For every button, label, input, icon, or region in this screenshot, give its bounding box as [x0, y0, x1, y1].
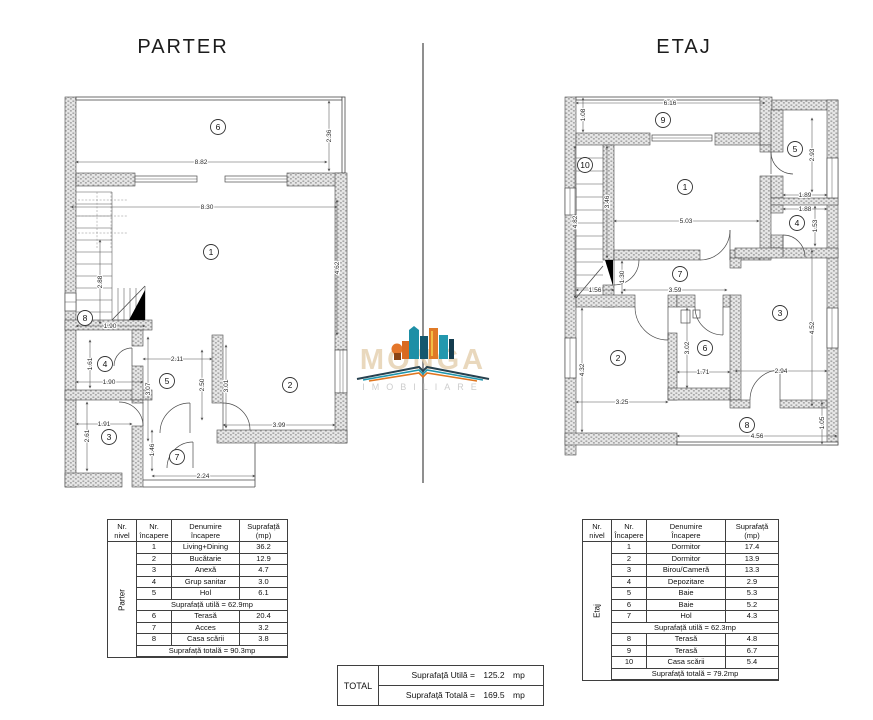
level-label-cell: Etaj	[583, 542, 612, 680]
table-cell: Casa scării	[172, 634, 240, 645]
table-header-cell: Suprafață(mp)	[240, 520, 287, 541]
room-number: 7	[678, 269, 683, 279]
total-table-label: TOTAL	[338, 666, 379, 705]
table-cell: 3.0	[240, 577, 287, 588]
table-row: 8Terasă4.8	[612, 634, 778, 646]
total-row: Suprafață Utilă =125.2mp	[379, 666, 543, 686]
dimension-label: 1.46	[149, 443, 156, 456]
table-row: 5Baie5.3	[612, 588, 778, 600]
table-cell: 6.7	[726, 646, 778, 657]
table-cell: Baie	[647, 600, 726, 611]
dimension-label: 1.53	[812, 219, 819, 232]
dimension-label: 1.89	[799, 192, 812, 199]
table-row: 8Casa scării3.8	[137, 634, 287, 646]
floor-plan-etaj: 910154726386.161.084.823.465.032.931.891…	[555, 88, 845, 460]
room-number: 1	[683, 182, 688, 192]
table-row: 3Anexă4.7	[137, 565, 287, 577]
table-cell: 4	[612, 577, 647, 588]
total-row-unit: mp	[513, 686, 537, 705]
title-etaj: ETAJ	[604, 36, 764, 59]
table-cell: 13.3	[726, 565, 778, 576]
watermark-logo: MONGA IMOBILIARE	[353, 326, 493, 398]
table-row: 2Bucătarie12.9	[137, 554, 287, 566]
table-header-cell: Nr.nivel	[108, 520, 137, 541]
parter-walls	[65, 97, 347, 487]
table-cell: 5	[612, 588, 647, 599]
dimension-label: 2.94	[775, 368, 788, 375]
dimension-label: 3.07	[145, 382, 152, 395]
table-row: 6Terasă20.4	[137, 611, 287, 623]
dimension-label: 2.93	[809, 148, 816, 161]
table-cell: 12.9	[240, 554, 287, 565]
table-row: 2Dormitor13.9	[612, 554, 778, 566]
table-cell: Grup sanitar	[172, 577, 240, 588]
dimension-label: 4.52	[809, 321, 816, 334]
room-number: 2	[288, 380, 293, 390]
table-cell: 20.4	[240, 611, 287, 622]
table-row: 6Baie5.2	[612, 600, 778, 612]
dimension-label: 6.16	[664, 100, 677, 107]
dimension-label: 4.62	[334, 261, 341, 274]
room-number: 1	[209, 247, 214, 257]
table-cell: 3	[612, 565, 647, 576]
area-table-etaj: Nr.nivelNr.ÎncapereDenumireÎncapereSupra…	[582, 519, 779, 681]
table-cell: 9	[612, 646, 647, 657]
table-cell: 2	[612, 554, 647, 565]
dimension-label: 4.32	[579, 363, 586, 376]
dimension-label: 2.36	[326, 129, 333, 142]
table-cell: Terasă	[647, 634, 726, 645]
table-cell: 5.2	[726, 600, 778, 611]
room-number: 4	[795, 218, 800, 228]
room-number: 8	[83, 313, 88, 323]
table-cell: 1	[137, 542, 172, 553]
table-cell: 7	[137, 623, 172, 634]
dimension-label: 1.61	[87, 357, 94, 370]
table-row: 5Hol6.1	[137, 588, 287, 600]
table-summary-row: Suprafață utilă = 62.3mp	[612, 623, 778, 635]
table-cell: 1	[612, 542, 647, 553]
total-row-label: Suprafață Totală =	[379, 686, 475, 705]
level-label-cell: Parter	[108, 542, 137, 657]
parter-stairs	[76, 192, 145, 320]
table-header-cell: Denumireîncapere	[172, 520, 240, 541]
watermark-tagline: IMOBILIARE	[353, 382, 493, 392]
table-cell: Baie	[647, 588, 726, 599]
dimension-label: 1.30	[619, 270, 626, 283]
table-header: Nr.nivelNr.încapereDenumireîncapereSupra…	[108, 520, 287, 542]
table-row: 4Grup sanitar3.0	[137, 577, 287, 589]
total-row-value: 169.5	[475, 686, 513, 705]
room-number: 7	[175, 452, 180, 462]
dimension-label: 1.05	[819, 416, 826, 429]
table-row: 4Depozitare2.9	[612, 577, 778, 589]
dimension-label: 2.24	[197, 473, 210, 480]
total-row-unit: mp	[513, 666, 537, 685]
table-row: 1Dormitor17.4	[612, 542, 778, 554]
dimension-label: 1.56	[589, 287, 602, 294]
table-cell: 8	[137, 634, 172, 645]
table-cell: 4.7	[240, 565, 287, 576]
floor-plan-parter: 618453728.822.368.304.622.881.901.611.90…	[57, 88, 357, 493]
table-row: 7Hol4.3	[612, 611, 778, 623]
table-cell: Depozitare	[647, 577, 726, 588]
table-row: 10Casa scării5.4	[612, 657, 778, 669]
level-label: Parter	[118, 589, 127, 611]
table-cell: 3.2	[240, 623, 287, 634]
table-cell: 3	[137, 565, 172, 576]
dimension-label: 3.01	[223, 379, 230, 392]
dimension-label: 4.82	[572, 215, 579, 228]
table-header-cell: DenumireÎncapere	[647, 520, 726, 541]
table-cell: 6.1	[240, 588, 287, 599]
dimension-label: 3.99	[273, 422, 286, 429]
table-cell: Living+Dining	[172, 542, 240, 553]
table-cell: Acces	[172, 623, 240, 634]
table-cell: Hol	[172, 588, 240, 599]
table-cell: Bucătarie	[172, 554, 240, 565]
room-number: 3	[778, 308, 783, 318]
center-divider-line	[422, 43, 424, 483]
title-parter: PARTER	[103, 36, 263, 59]
buildings-icon	[391, 326, 457, 364]
dimension-label: 1.91	[98, 421, 111, 428]
table-cell: 6	[612, 600, 647, 611]
room-number: 8	[745, 420, 750, 430]
total-table-rows: Suprafață Utilă =125.2mpSuprafață Totală…	[379, 666, 543, 705]
table-row: 9Terasă6.7	[612, 646, 778, 658]
table-header-cell: Nr.Încapere	[612, 520, 647, 541]
area-table-parter: Nr.nivelNr.încapereDenumireîncapereSupra…	[107, 519, 288, 658]
table-header-cell: Suprafață(mp)	[726, 520, 778, 541]
table-header-cell: Nr.încapere	[137, 520, 172, 541]
room-number: 10	[580, 160, 590, 170]
dimension-label: 2.11	[171, 356, 184, 363]
room-number: 5	[793, 144, 798, 154]
room-number: 6	[216, 122, 221, 132]
dimension-label: 3.59	[669, 287, 682, 294]
table-cell: 4.3	[726, 611, 778, 622]
table-cell: Dormitor	[647, 542, 726, 553]
table-cell: Casa scării	[647, 657, 726, 668]
dimension-label: 3.02	[684, 341, 691, 354]
total-table: TOTAL Suprafață Utilă =125.2mpSuprafață …	[337, 665, 544, 706]
table-cell: 5.3	[726, 588, 778, 599]
floorplan-sheet: PARTER ETAJ	[0, 0, 873, 720]
table-cell: 36.2	[240, 542, 287, 553]
dimension-label: 1.88	[799, 206, 812, 213]
table-header-cell: Nr.nivel	[583, 520, 612, 541]
parter-dimension-lines	[71, 101, 337, 476]
table-summary-row: Suprafață totală = 79.2mp	[612, 669, 778, 681]
dimension-label: 8.30	[201, 204, 214, 211]
dimension-label: 8.82	[195, 159, 208, 166]
table-row: 3Birou/Cameră13.3	[612, 565, 778, 577]
total-row: Suprafață Totală =169.5mp	[379, 686, 543, 705]
table-cell: Dormitor	[647, 554, 726, 565]
table-cell: 17.4	[726, 542, 778, 553]
dimension-label: 4.56	[751, 433, 764, 440]
table-cell: 5.4	[726, 657, 778, 668]
table-summary-row: Suprafață utilă = 62.9mp	[137, 600, 287, 612]
table-cell: 6	[137, 611, 172, 622]
table-row: 7Acces3.2	[137, 623, 287, 635]
dimension-label: 2.50	[199, 378, 206, 391]
dimension-label: 3.25	[616, 399, 629, 406]
roof-swoosh-icon	[353, 364, 493, 382]
dimension-label: 1.71	[697, 369, 710, 376]
table-cell: 2	[137, 554, 172, 565]
dimension-label: 3.46	[604, 195, 611, 208]
table-summary-row: Suprafață totală = 90.3mp	[137, 646, 287, 658]
table-header: Nr.nivelNr.ÎncapereDenumireÎncapereSupra…	[583, 520, 778, 542]
table-cell: 2.9	[726, 577, 778, 588]
dimension-label: 1.08	[580, 108, 587, 121]
table-cell: 5	[137, 588, 172, 599]
room-number: 9	[661, 115, 666, 125]
table-cell: Birou/Cameră	[647, 565, 726, 576]
room-number: 3	[107, 432, 112, 442]
total-row-label: Suprafață Utilă =	[379, 666, 475, 685]
room-number: 6	[703, 343, 708, 353]
table-cell: 4.8	[726, 634, 778, 645]
dimension-label: 2.61	[84, 429, 91, 442]
table-cell: 10	[612, 657, 647, 668]
table-cell: Terasă	[647, 646, 726, 657]
dimension-label: 1.90	[104, 323, 117, 330]
table-cell: Terasă	[172, 611, 240, 622]
room-number: 5	[165, 376, 170, 386]
table-cell: Hol	[647, 611, 726, 622]
dimension-label: 5.03	[680, 218, 693, 225]
table-cell: 8	[612, 634, 647, 645]
table-row: 1Living+Dining36.2	[137, 542, 287, 554]
table-cell: 4	[137, 577, 172, 588]
room-number: 2	[616, 353, 621, 363]
dimension-label: 2.88	[97, 275, 104, 288]
dimension-label: 1.90	[103, 379, 116, 386]
table-cell: 13.9	[726, 554, 778, 565]
table-cell: 7	[612, 611, 647, 622]
total-row-value: 125.2	[475, 666, 513, 685]
table-cell: Anexă	[172, 565, 240, 576]
level-label: Etaj	[593, 604, 602, 618]
room-number: 4	[103, 359, 108, 369]
table-cell: 3.8	[240, 634, 287, 645]
